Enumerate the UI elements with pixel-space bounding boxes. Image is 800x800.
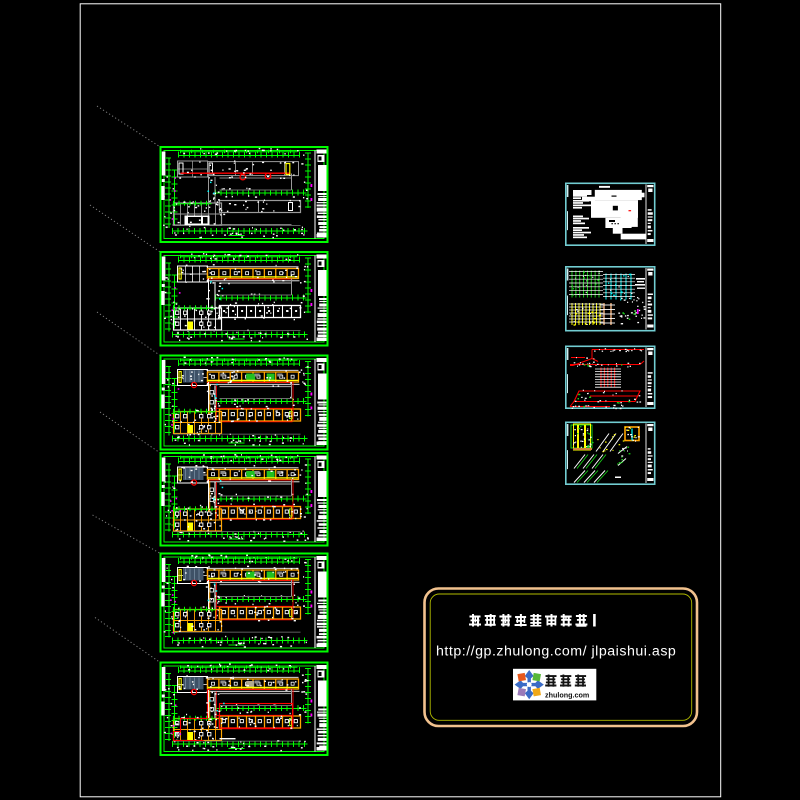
svg-text:http://gp.zhulong.com/ jlpaish: http://gp.zhulong.com/ jlpaishui.asp: [436, 644, 676, 660]
svg-text:zhulong.com: zhulong.com: [545, 691, 589, 700]
